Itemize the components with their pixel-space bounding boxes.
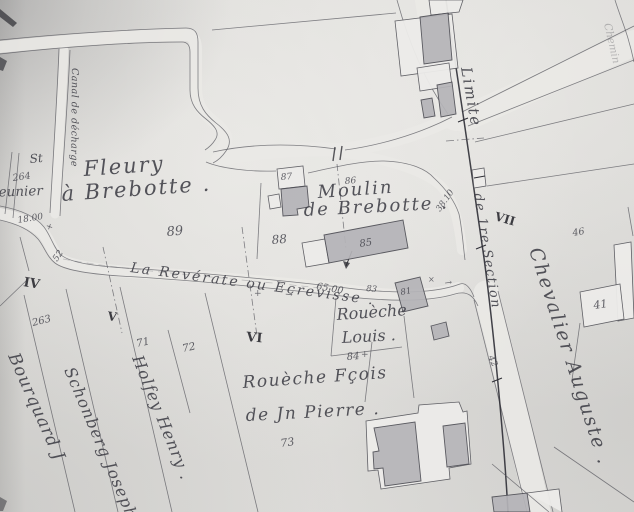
building-85-annex [302,239,329,267]
parcel-number-81: 81 [400,286,412,298]
bottom-building [492,493,530,512]
owner-rouesche2-line2: de Jn Pierre . [245,399,380,426]
cadastral-map: Canal de décharge meunier St 264 Fleury … [0,0,634,512]
east-field-line-2 [487,164,634,186]
owner-schonberg-label: Schonberg Joseph [60,364,141,512]
roman-iv: IV [22,275,41,293]
smudge-bottom-left [0,497,7,511]
owner-holfey-label: Holfey Henry . [128,351,196,482]
strip-boundary-lines [24,287,258,512]
survey-arrow-1: → [285,290,294,301]
parcel-number-46: 46 [571,226,586,239]
mark-iv-line [20,237,29,271]
canal-south-bank [0,42,217,150]
owner-rouesche-line1: Rouèche [335,300,407,324]
south-road-band [486,293,538,512]
parcel-number-88: 88 [271,232,288,247]
mill-leanto [268,194,281,209]
owner-rouesche-line2: Louis . [340,325,396,347]
parcel-number-84: 84 [346,351,360,363]
building-small-center [431,322,449,340]
survey-cross-2: + [254,289,262,299]
roman-vii: VII [492,209,517,229]
owner-bourquard-label: Bourquard J [3,349,69,464]
parcel-number-83: 83 [366,284,378,295]
survey-cross-3: + [361,350,369,360]
building-cluster-main [420,13,452,64]
roman-vi: VI [245,330,263,346]
canal-name-label: Canal de décharge [68,68,80,167]
canal-band [0,35,226,150]
top-field-line [212,13,396,30]
parcel-number-72: 72 [181,340,197,355]
survey-arrow-head [343,261,350,269]
parcel-number-73: 73 [280,435,296,450]
owner-meunier-label: meunier [0,183,45,201]
parcel-number-41: 41 [592,297,609,312]
smudge-left-edge [0,57,7,71]
dashdot-limit-cross [446,138,484,141]
survey-arrow-2: → [444,278,453,289]
parcel-88-line [257,183,261,259]
survey-x-mark: × [428,275,435,284]
millpond-band [218,118,452,160]
farm-complex-east [443,423,469,467]
map-canvas: Canal de décharge meunier St 264 Fleury … [0,0,634,512]
owner-rouesche2-line1: Rouèche Fçois [241,363,388,393]
building-top-edge [429,0,463,15]
roman-v: V [106,309,119,324]
smudge-top-left [0,9,17,27]
building-cluster-small [421,98,435,118]
left-edge-line [0,281,26,306]
parcel-number-264: 264 [11,171,31,185]
scan-smudges [0,9,17,511]
parcel-number-89: 89 [166,224,184,240]
parcel-number-263: 263 [30,314,52,330]
owner-chevalier-label: Chevalier Auguste . [524,245,615,468]
owner-st-label: St [29,151,43,166]
parcel-number-85: 85 [359,237,373,250]
parcel-number-71: 71 [135,335,151,350]
parcel-number-87: 87 [280,172,293,183]
